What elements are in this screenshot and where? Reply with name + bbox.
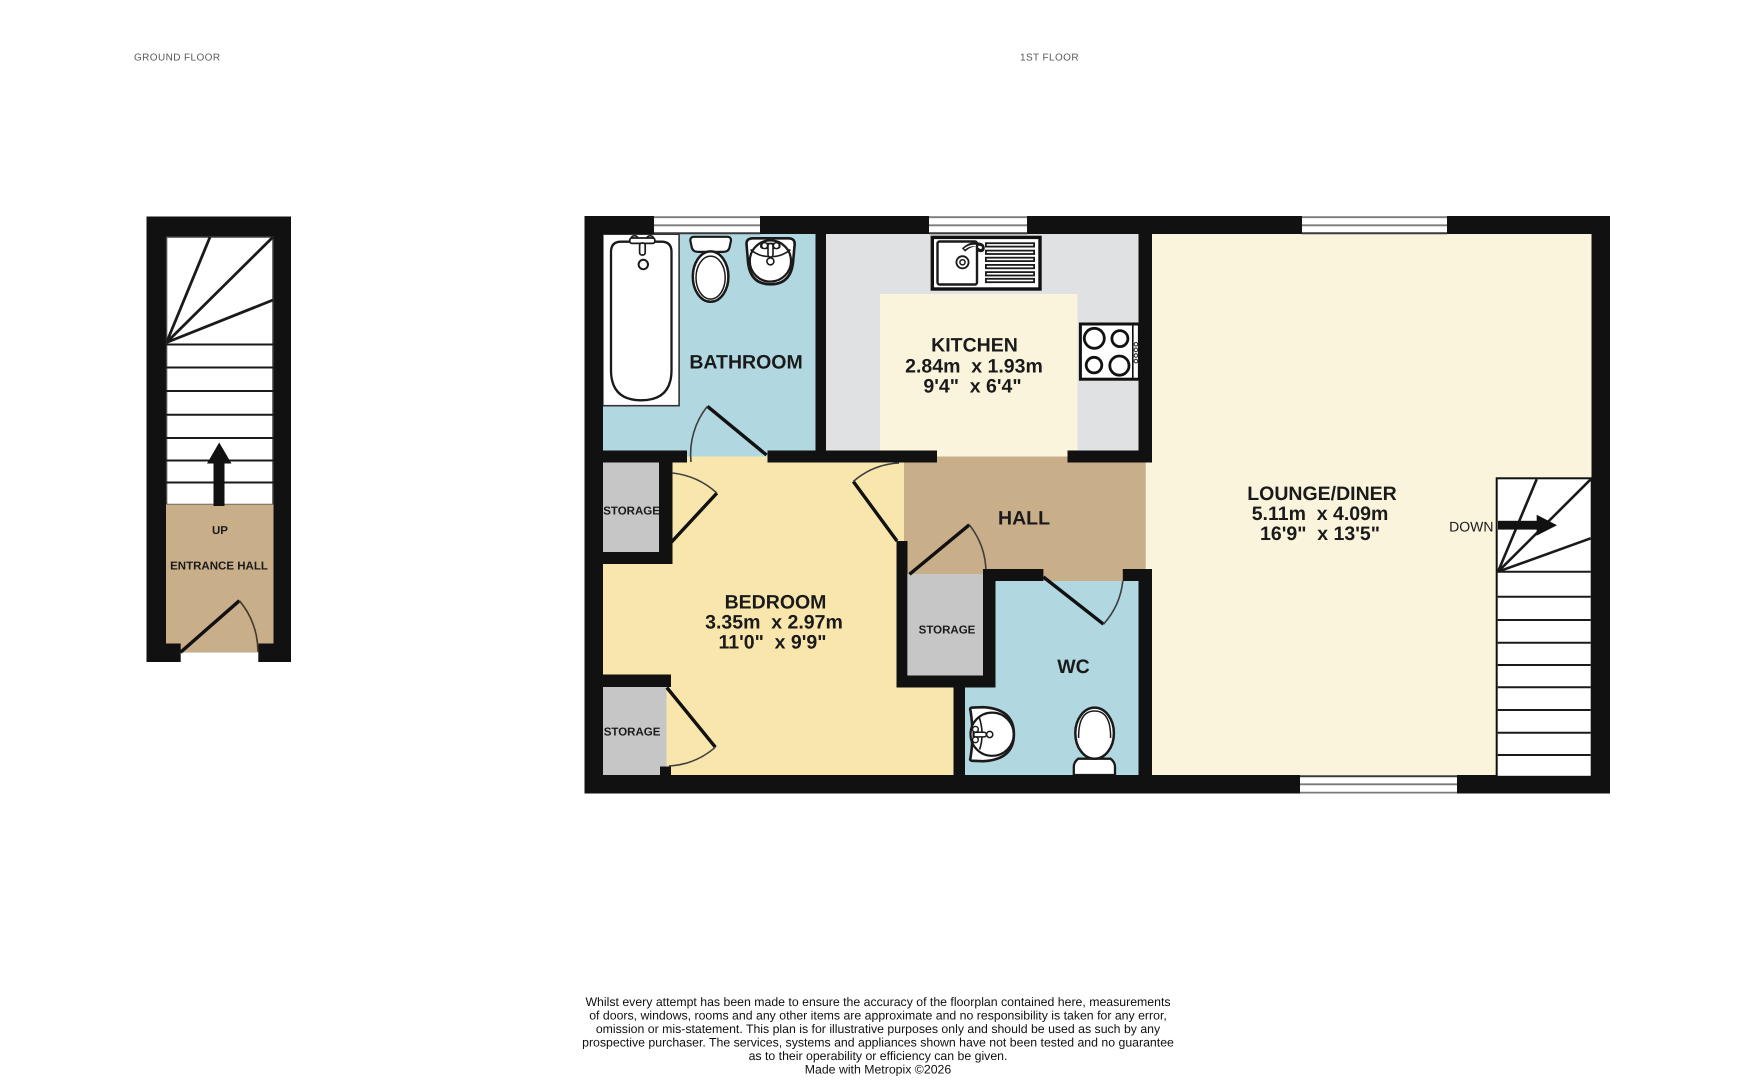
svg-text:KITCHEN: KITCHEN [931, 335, 1018, 357]
svg-text:STORAGE: STORAGE [604, 726, 661, 738]
svg-text:GROUND FLOOR: GROUND FLOOR [134, 53, 220, 64]
svg-text:BATHROOM: BATHROOM [689, 352, 802, 374]
svg-text:9'4" x 6'4": 9'4" x 6'4" [923, 376, 1021, 398]
svg-text:16'9" x 13'5": 16'9" x 13'5" [1260, 523, 1380, 545]
svg-text:as to their operability or eff: as to their operability or efficiency ca… [749, 1049, 1008, 1063]
svg-text:ENTRANCE HALL: ENTRANCE HALL [170, 561, 268, 573]
svg-text:1ST FLOOR: 1ST FLOOR [1020, 53, 1079, 64]
svg-text:Made with Metropix ©2026: Made with Metropix ©2026 [805, 1062, 952, 1076]
svg-text:HALL: HALL [998, 508, 1050, 530]
svg-text:omission or mis-statement. Thi: omission or mis-statement. This plan is … [596, 1022, 1161, 1036]
svg-text:BEDROOM: BEDROOM [725, 592, 827, 614]
svg-text:LOUNGE/DINER: LOUNGE/DINER [1247, 483, 1397, 505]
svg-text:WC: WC [1057, 656, 1090, 678]
svg-text:11'0" x 9'9": 11'0" x 9'9" [718, 632, 826, 654]
svg-text:DOWN: DOWN [1449, 519, 1493, 535]
svg-text:of doors, windows, rooms and a: of doors, windows, rooms and any other i… [589, 1008, 1167, 1022]
svg-text:STORAGE: STORAGE [919, 624, 976, 636]
svg-text:5.11m x 4.09m: 5.11m x 4.09m [1252, 503, 1389, 525]
svg-text:prospective purchaser. The ser: prospective purchaser. The services, sys… [582, 1035, 1174, 1049]
svg-text:STORAGE: STORAGE [603, 506, 660, 518]
svg-text:3.35m x 2.97m: 3.35m x 2.97m [705, 612, 843, 634]
svg-text:2.84m x 1.93m: 2.84m x 1.93m [905, 356, 1043, 378]
svg-text:UP: UP [212, 525, 228, 537]
svg-text:Whilst every attempt has been: Whilst every attempt has been made to en… [585, 995, 1170, 1009]
